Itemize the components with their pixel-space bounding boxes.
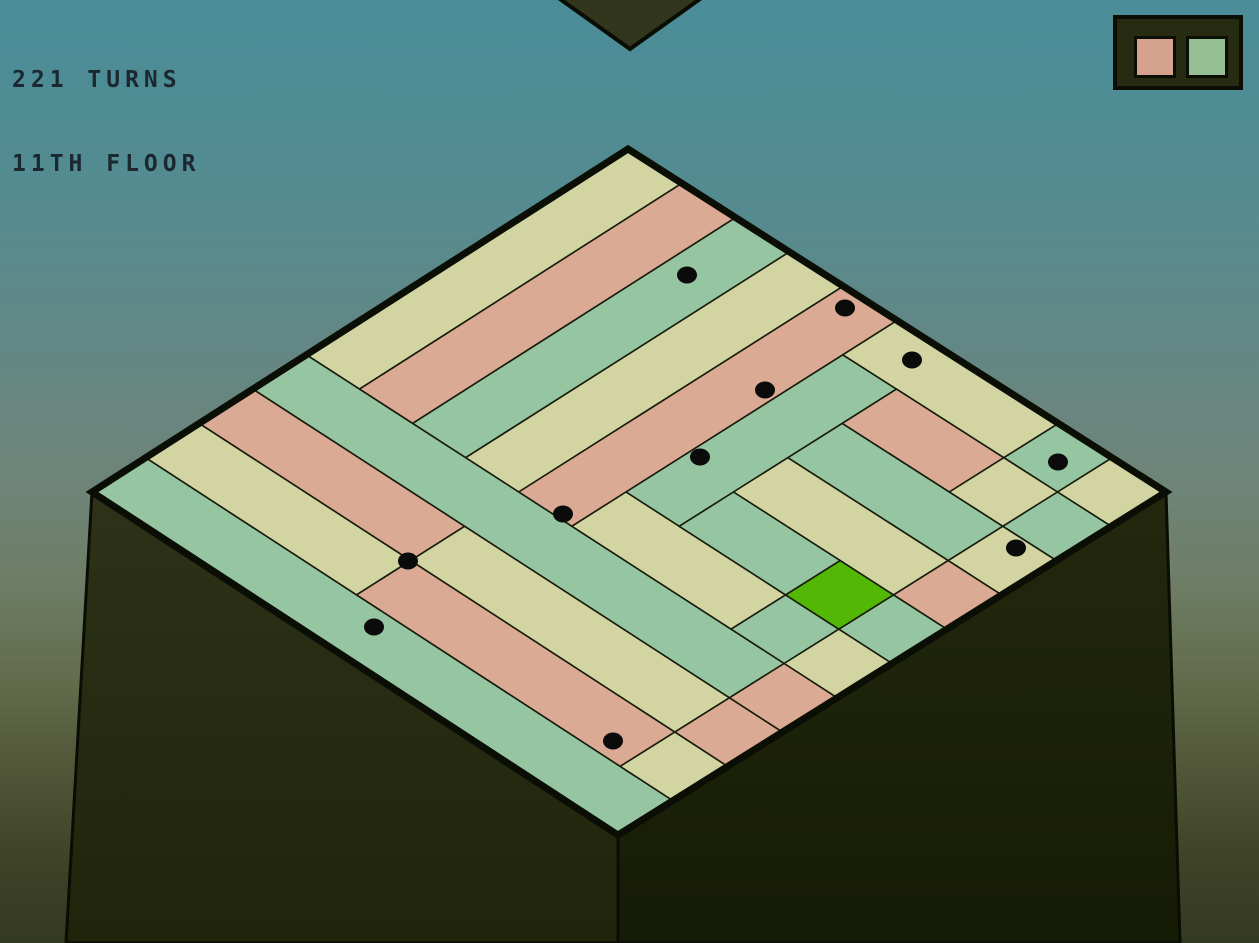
hole-dot [603, 733, 623, 750]
legend-swatch-salmon [1134, 36, 1176, 78]
turn-counter: 221 TURNS [12, 66, 200, 94]
hole-dot [902, 352, 922, 369]
hole-dot [364, 619, 384, 636]
floor-indicator: 11TH FLOOR [12, 150, 200, 178]
hole-dot [553, 506, 573, 523]
hud: 221 TURNS 11TH FLOOR [12, 10, 200, 206]
hole-dot [398, 553, 418, 570]
hole-dot [1048, 454, 1068, 471]
hole-dot [1006, 540, 1026, 557]
hole-dot [690, 449, 710, 466]
hole-dot [835, 300, 855, 317]
legend-swatch-green [1186, 36, 1228, 78]
upper-floor-corner [553, 0, 707, 49]
hole-dot [755, 382, 775, 399]
tile-color-legend [1113, 15, 1243, 90]
hole-dot [677, 267, 697, 284]
